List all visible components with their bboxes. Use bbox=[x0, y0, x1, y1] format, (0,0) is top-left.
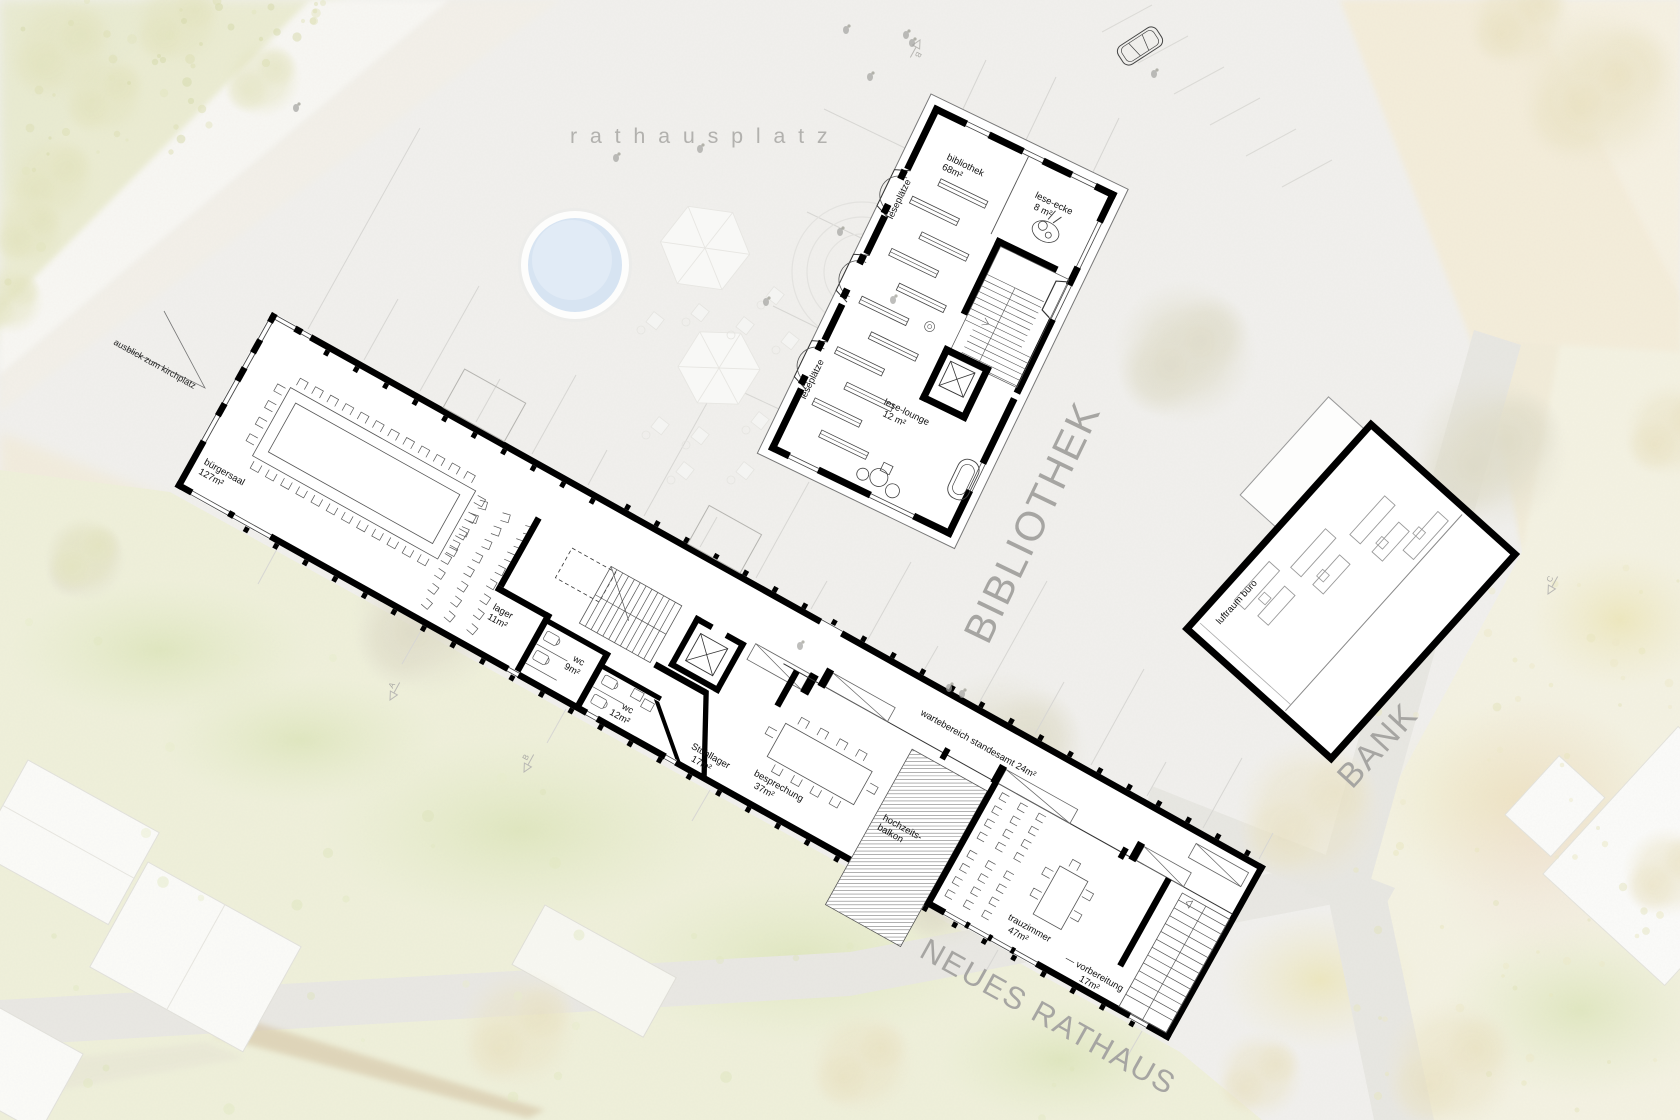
svg-text:r a t h a u s p l a t z: r a t h a u s p l a t z bbox=[570, 124, 831, 148]
